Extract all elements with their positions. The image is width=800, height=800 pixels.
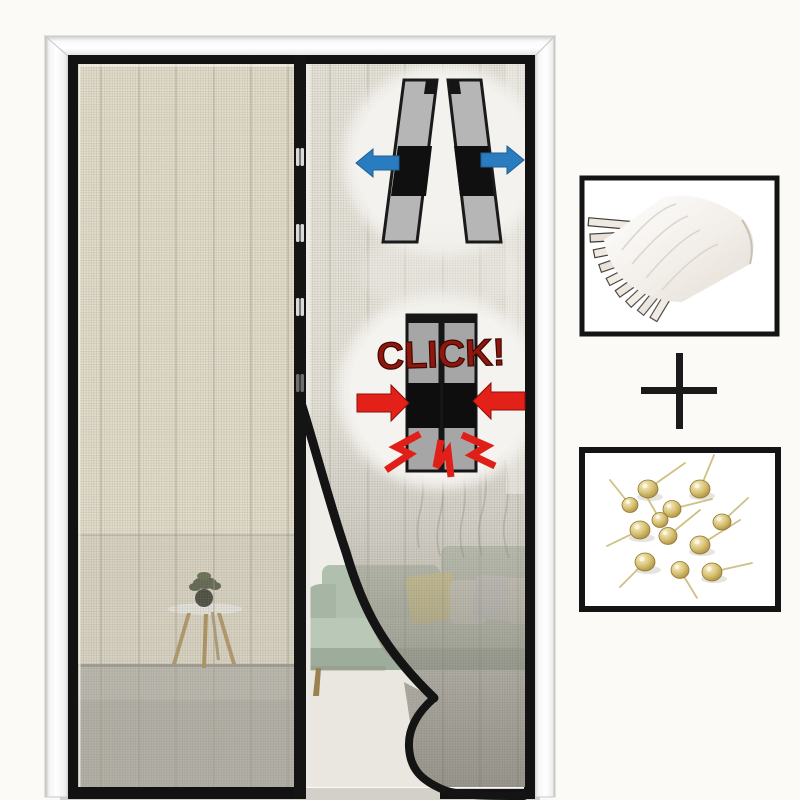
svg-text:CLICK!: CLICK! [376, 332, 506, 378]
